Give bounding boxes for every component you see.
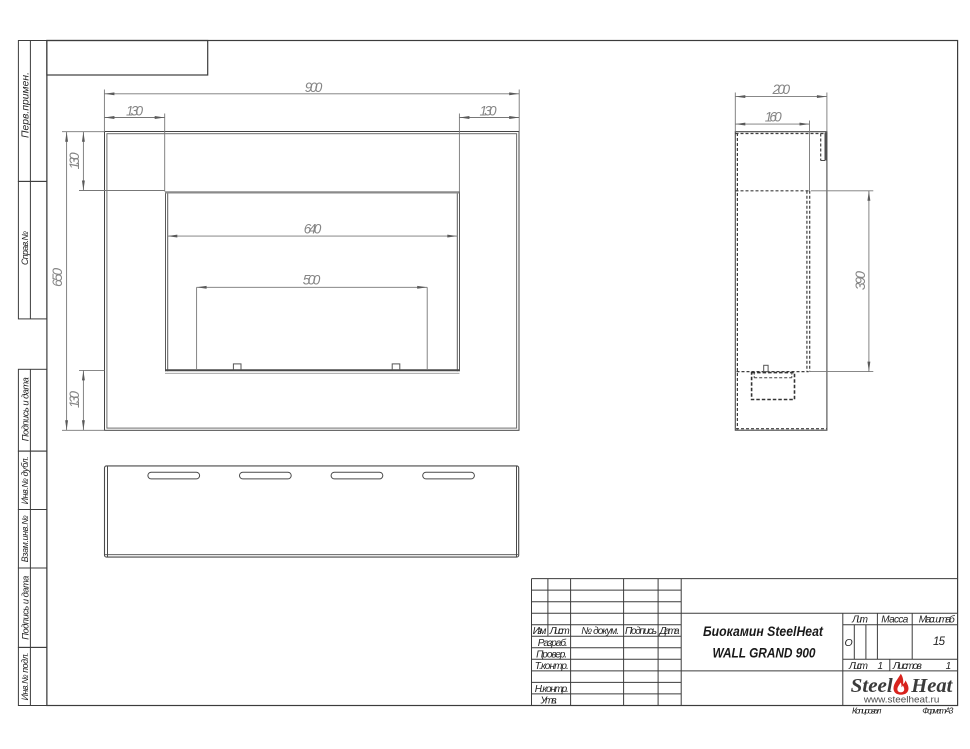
svg-text:Формат А3: Формат А3 [922,706,953,716]
svg-text:Перв.примен.: Перв.примен. [21,72,32,138]
svg-text:Инв.№ дубл.: Инв.№ дубл. [20,456,30,504]
svg-text:Изм.: Изм. [533,626,547,637]
svg-text:Листов: Листов [892,661,922,672]
svg-text:О: О [845,637,853,649]
svg-text:Провер.: Провер. [536,649,567,660]
svg-text:15: 15 [933,636,946,648]
svg-text:Взам.инв.№: Взам.инв.№ [20,515,30,562]
svg-text:Подпись и дата: Подпись и дата [20,576,30,640]
svg-text:390: 390 [853,271,868,290]
svg-text:900: 900 [305,80,323,95]
svg-text:Масштаб: Масштаб [919,613,955,625]
svg-text:Копировал: Копировал [852,706,882,716]
svg-text:1: 1 [946,661,952,672]
svg-text:130: 130 [67,152,82,169]
svg-text:Инв.№ подл.: Инв.№ подл. [20,652,30,700]
svg-text:640: 640 [304,221,322,236]
svg-text:650: 650 [50,267,65,286]
svg-text:130: 130 [480,103,497,118]
svg-text:500: 500 [303,273,321,288]
svg-text:200: 200 [772,82,791,97]
svg-text:Биокамин SteelHeat: Биокамин SteelHeat [703,624,824,640]
svg-text:160: 160 [765,109,782,124]
svg-text:WALL GRAND 900: WALL GRAND 900 [713,646,816,662]
svg-text:Н.контр.: Н.контр. [535,684,569,695]
svg-text:Справ.№: Справ.№ [20,231,30,265]
svg-text:www.steelheat.ru: www.steelheat.ru [863,695,940,706]
svg-text:Лист: Лист [549,626,570,637]
svg-text:Дата: Дата [659,626,680,637]
svg-text:Разраб.: Разраб. [538,637,568,649]
svg-text:130: 130 [126,103,143,118]
svg-text:Т.контр.: Т.контр. [535,661,569,672]
svg-text:Утв.: Утв. [540,695,558,706]
svg-text:Лист: Лист [848,661,868,672]
svg-text:Лит.: Лит. [851,614,868,625]
svg-text:Масса: Масса [881,614,908,625]
svg-text:№ докум.: № докум. [581,626,619,637]
svg-text:130: 130 [67,391,82,408]
svg-text:Подпись и дата: Подпись и дата [20,377,30,441]
svg-text:1: 1 [878,661,884,672]
svg-text:Подпись: Подпись [625,626,657,637]
